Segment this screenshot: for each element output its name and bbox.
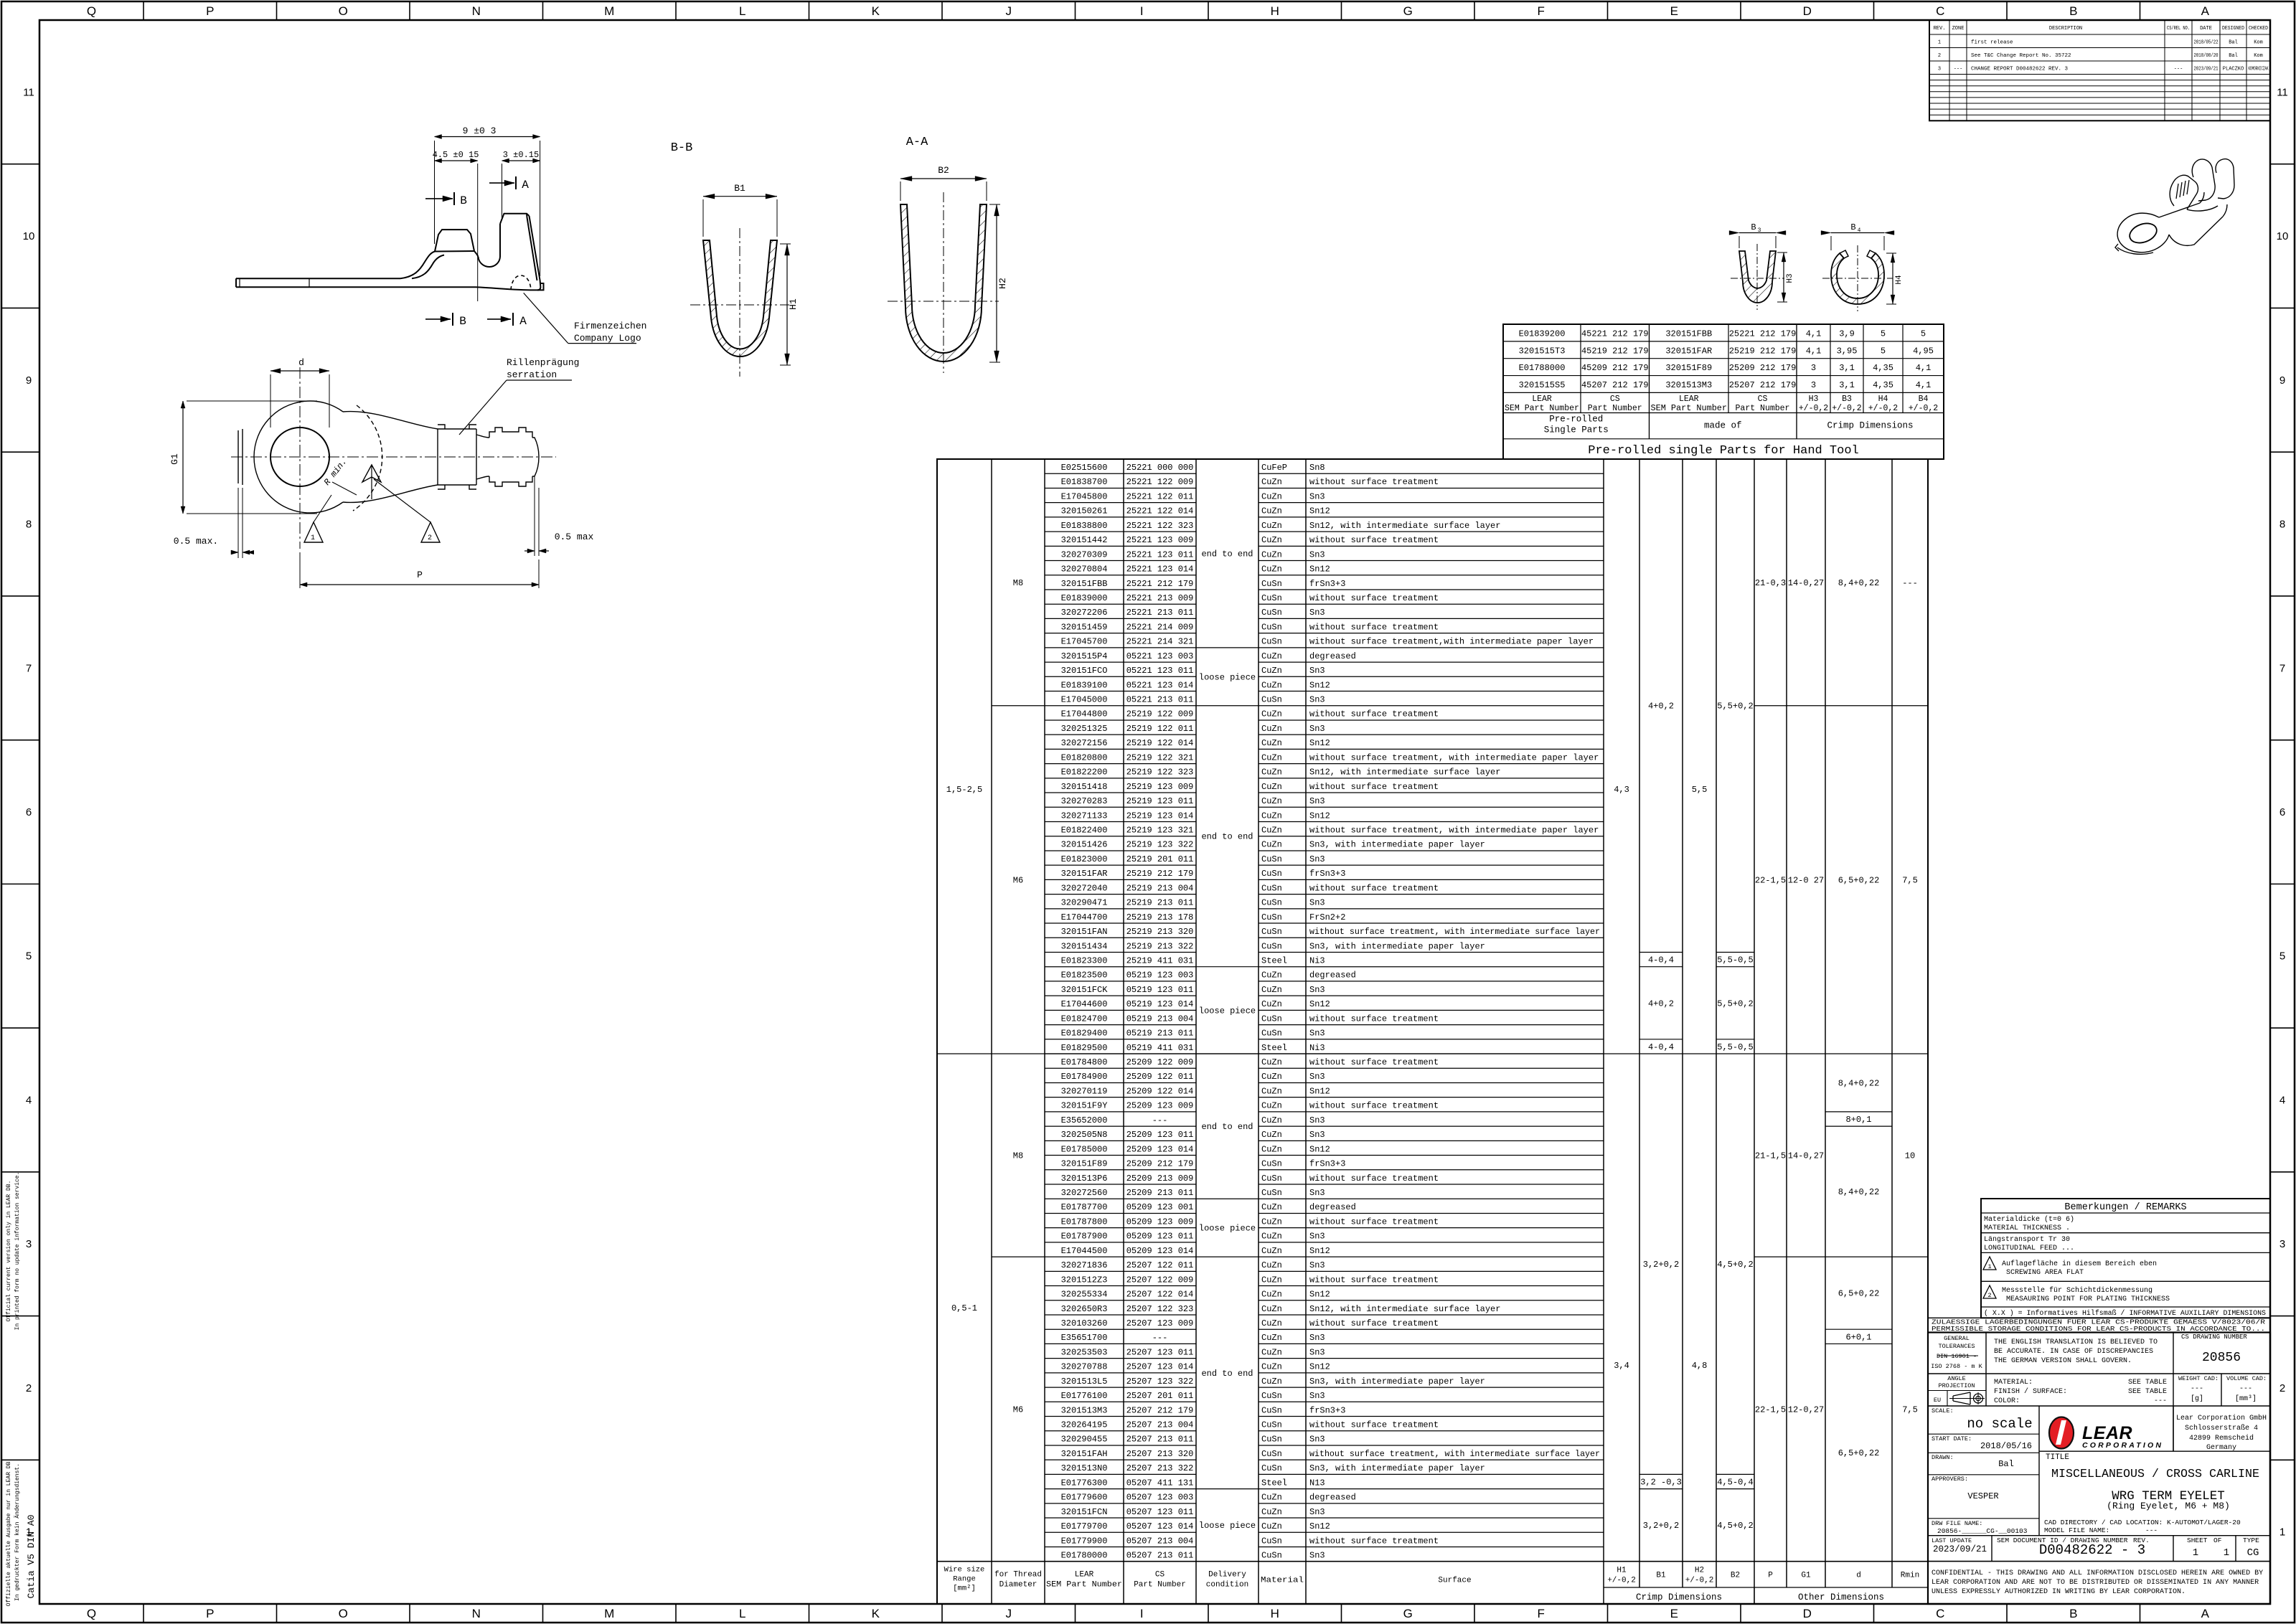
svg-text:10: 10 [1905, 1151, 1915, 1161]
svg-text:25219 122 321: 25219 122 321 [1126, 752, 1194, 763]
svg-text:25219 213 178: 25219 213 178 [1126, 912, 1194, 922]
svg-text:LONGITUDINAL FEED ...: LONGITUDINAL FEED ... [1984, 1245, 2074, 1252]
svg-text:4-0,4: 4-0,4 [1648, 1042, 1674, 1052]
svg-text:E01776300: E01776300 [1061, 1478, 1108, 1488]
svg-text:25221 123 014: 25221 123 014 [1126, 565, 1194, 575]
svg-text:CuZn: CuZn [1261, 651, 1282, 661]
svg-text:3201513M3: 3201513M3 [1665, 380, 1712, 390]
svg-text:made of: made of [1704, 421, 1742, 431]
svg-text:L: L [739, 1607, 745, 1620]
svg-text:Sn3, with intermediate paper l: Sn3, with intermediate paper layer [1309, 1377, 1485, 1387]
svg-text:CuSn: CuSn [1261, 898, 1282, 908]
svg-text:+/-0,2: +/-0,2 [1607, 1577, 1636, 1585]
svg-text:5,5-0,5: 5,5-0,5 [1717, 955, 1753, 966]
svg-text:E17045700: E17045700 [1061, 637, 1108, 647]
svg-text:25219 123 009: 25219 123 009 [1126, 782, 1194, 792]
svg-text:CuFeP: CuFeP [1261, 463, 1287, 473]
svg-text:E01787800: E01787800 [1061, 1217, 1108, 1227]
svg-text:Bal: Bal [1998, 1459, 2014, 1469]
svg-text:CAD DIRECTORY / CAD LOCATION:: CAD DIRECTORY / CAD LOCATION: K-AUTOMOT/… [2044, 1519, 2241, 1526]
svg-text:8: 8 [26, 519, 32, 531]
svg-text:frSn3+3: frSn3+3 [1309, 1405, 1345, 1415]
svg-text:Längstransport Tr 30: Längstransport Tr 30 [1984, 1235, 2070, 1244]
svg-text:10: 10 [23, 230, 35, 242]
svg-text:25207 123 011: 25207 123 011 [1126, 1347, 1194, 1357]
svg-text:2: 2 [1987, 1292, 1991, 1299]
svg-text:degreased: degreased [1309, 1493, 1356, 1503]
svg-text:Offizielle aktuelle Ausgabe nu: Offizielle aktuelle Ausgabe nur in LEAR … [6, 1458, 12, 1606]
svg-text:J: J [1006, 1607, 1012, 1620]
svg-text:loose piece: loose piece [1199, 672, 1256, 682]
svg-text:SHEET: SHEET [2187, 1536, 2208, 1544]
svg-text:Sn12: Sn12 [1309, 1521, 1330, 1531]
svg-text:4,1: 4,1 [1806, 329, 1822, 339]
svg-text:B2: B2 [938, 165, 949, 176]
svg-text:Crimp Dimensions: Crimp Dimensions [1827, 421, 1913, 431]
svg-text:CuZn: CuZn [1261, 826, 1282, 836]
svg-text:CS/REL NO.: CS/REL NO. [2167, 26, 2190, 32]
svg-text:Sn12: Sn12 [1309, 1362, 1330, 1372]
svg-text:320151FAH: 320151FAH [1061, 1449, 1108, 1459]
svg-text:Germany: Germany [2206, 1444, 2236, 1452]
svg-text:320151F89: 320151F89 [1665, 363, 1712, 373]
svg-text:CuZn: CuZn [1261, 738, 1282, 748]
svg-text:25219 123 322: 25219 123 322 [1126, 840, 1194, 850]
svg-text:25221 212 179: 25221 212 179 [1126, 579, 1194, 589]
svg-text:B: B [1850, 222, 1855, 232]
svg-text:8,4+0,22: 8,4+0,22 [1838, 1078, 1880, 1088]
svg-text:first release: first release [1971, 40, 2013, 46]
svg-text:Sn3: Sn3 [1309, 491, 1325, 501]
svg-text:1: 1 [2193, 1547, 2198, 1559]
svg-text:G: G [1403, 1607, 1413, 1620]
svg-text:Sn3: Sn3 [1309, 549, 1325, 560]
svg-text:without surface treatment: without surface treatment [1309, 535, 1439, 545]
svg-text:CuZn: CuZn [1261, 1202, 1282, 1212]
svg-text:Sn12: Sn12 [1309, 1246, 1330, 1256]
svg-text:3201513L5: 3201513L5 [1061, 1377, 1108, 1387]
svg-text:CuSn: CuSn [1261, 912, 1282, 922]
svg-text:E02515600: E02515600 [1061, 463, 1108, 473]
svg-text:4,1: 4,1 [1916, 380, 1932, 390]
svg-text:DRW FILE NAME:: DRW FILE NAME: [1932, 1520, 1982, 1527]
svg-text:3201513N0: 3201513N0 [1061, 1463, 1108, 1473]
svg-text:d: d [298, 357, 304, 368]
svg-text:without surface treatment: without surface treatment [1309, 709, 1439, 719]
svg-text:3201512Z3: 3201512Z3 [1061, 1275, 1108, 1285]
svg-text:9 ±0 3: 9 ±0 3 [463, 126, 497, 136]
svg-text:25209 122 009: 25209 122 009 [1126, 1057, 1194, 1067]
svg-text:10: 10 [2277, 230, 2289, 242]
svg-text:CuZn: CuZn [1261, 1493, 1282, 1503]
svg-text:CuZn: CuZn [1261, 1362, 1282, 1372]
svg-text:N: N [472, 1607, 481, 1620]
svg-text:no scale: no scale [1967, 1416, 2032, 1432]
svg-text:START DATE:: START DATE: [1932, 1435, 1972, 1443]
svg-text:Part Number: Part Number [1736, 404, 1790, 413]
svg-text:320270788: 320270788 [1061, 1362, 1108, 1372]
svg-text:5: 5 [1881, 346, 1886, 356]
svg-text:end to end: end to end [1201, 1122, 1253, 1132]
svg-text:E17044500: E17044500 [1061, 1246, 1108, 1256]
svg-text:Sn3: Sn3 [1309, 1333, 1325, 1343]
svg-text:loose piece: loose piece [1199, 1006, 1256, 1016]
svg-text:[mm²]: [mm²] [953, 1585, 976, 1593]
svg-text:05209 123 001: 05209 123 001 [1126, 1202, 1194, 1212]
svg-text:CuSn: CuSn [1261, 637, 1282, 647]
svg-text:SEE TABLE: SEE TABLE [2128, 1379, 2167, 1387]
svg-text:25219 213 011: 25219 213 011 [1126, 898, 1194, 908]
svg-text:EU: EU [1934, 1397, 1941, 1404]
svg-text:320103260: 320103260 [1061, 1318, 1108, 1328]
svg-text:6+0,1: 6+0,1 [1845, 1332, 1871, 1342]
svg-text:320271836: 320271836 [1061, 1260, 1108, 1270]
svg-text:3 ±0.15: 3 ±0.15 [503, 150, 539, 160]
svg-text:320151FBB: 320151FBB [1665, 329, 1712, 339]
svg-text:Sn3: Sn3 [1309, 724, 1325, 734]
svg-text:5: 5 [26, 950, 32, 963]
svg-text:F: F [1538, 4, 1545, 18]
svg-text:7,5: 7,5 [1902, 875, 1918, 885]
svg-text:---: --- [2239, 1385, 2252, 1393]
svg-text:H: H [1271, 1607, 1279, 1620]
svg-text:25221 213 009: 25221 213 009 [1126, 593, 1194, 603]
svg-text:E: E [1670, 4, 1678, 18]
svg-text:25221 122 014: 25221 122 014 [1126, 506, 1194, 516]
svg-text:without surface treatment: without surface treatment [1309, 782, 1439, 792]
svg-text:Sn3: Sn3 [1309, 1188, 1325, 1198]
svg-text:A: A [2201, 4, 2210, 18]
svg-text:CuZn: CuZn [1261, 1130, 1282, 1140]
svg-text:25209 123 014: 25209 123 014 [1126, 1144, 1194, 1154]
svg-text:Materialdicke (t=0 6): Materialdicke (t=0 6) [1984, 1215, 2074, 1224]
svg-text:CuZn: CuZn [1261, 1333, 1282, 1343]
svg-text:D: D [1803, 4, 1812, 18]
svg-text:H3: H3 [1786, 273, 1794, 283]
svg-text:2018/05/22: 2018/05/22 [2194, 40, 2219, 46]
svg-text:25207 122 011: 25207 122 011 [1126, 1260, 1194, 1270]
svg-text:3: 3 [1811, 363, 1816, 373]
svg-text:REV.: REV. [1934, 26, 1946, 32]
svg-text:CuZn: CuZn [1261, 1115, 1282, 1125]
svg-text:25219 213 004: 25219 213 004 [1126, 883, 1194, 893]
svg-text:9: 9 [26, 374, 32, 387]
svg-text:CuZn: CuZn [1261, 1232, 1282, 1242]
svg-text:In gedruckter Form kein Änderu: In gedruckter Form kein Änderungsdienst. [14, 1463, 21, 1601]
svg-text:320151FAR: 320151FAR [1665, 346, 1712, 356]
svg-text:25209 123 009: 25209 123 009 [1126, 1101, 1194, 1111]
svg-text:Bal: Bal [2229, 40, 2238, 46]
svg-text:B: B [460, 194, 467, 207]
svg-text:A-A: A-A [906, 136, 928, 149]
svg-text:3,1: 3,1 [1839, 380, 1855, 390]
svg-text:degreased: degreased [1309, 971, 1356, 981]
svg-text:d: d [1856, 1572, 1861, 1580]
svg-text:Sn3: Sn3 [1309, 898, 1325, 908]
svg-text:CuSn: CuSn [1261, 622, 1282, 632]
svg-text:E01822200: E01822200 [1061, 768, 1108, 778]
svg-text:O: O [339, 4, 348, 18]
svg-text:E01829400: E01829400 [1061, 1029, 1108, 1039]
svg-text:Sn3: Sn3 [1309, 666, 1325, 676]
svg-text:25209 123 011: 25209 123 011 [1126, 1130, 1194, 1140]
svg-text:MODEL FILE NAME:: MODEL FILE NAME: [2044, 1526, 2109, 1534]
svg-text:3201513M3: 3201513M3 [1061, 1405, 1108, 1415]
svg-text:CuZn: CuZn [1261, 1057, 1282, 1067]
svg-text:Sn3: Sn3 [1309, 1072, 1325, 1082]
svg-text:CuSn: CuSn [1261, 1536, 1282, 1546]
svg-text:05219 213 011: 05219 213 011 [1126, 1029, 1194, 1039]
svg-text:Sn3: Sn3 [1309, 1260, 1325, 1270]
svg-text:A: A [522, 179, 529, 192]
svg-text:Sn12, with intermediate surfac: Sn12, with intermediate surface layer [1309, 521, 1500, 531]
svg-text:P: P [1768, 1572, 1773, 1580]
svg-text:E17044800: E17044800 [1061, 709, 1108, 719]
svg-text:+/-0,2: +/-0,2 [1832, 404, 1862, 413]
svg-text:4,5+0,2: 4,5+0,2 [1717, 1260, 1753, 1270]
svg-text:05207 213 004: 05207 213 004 [1126, 1536, 1194, 1546]
svg-text:---: --- [1954, 67, 1963, 72]
svg-text:LEAR CORPORATION AND ARE NOT T: LEAR CORPORATION AND ARE NOT TO BE DISTR… [1932, 1579, 2259, 1587]
svg-text:---: --- [2145, 1526, 2158, 1534]
svg-text:[mm³]: [mm³] [2235, 1394, 2257, 1403]
svg-text:25221 214 321: 25221 214 321 [1126, 637, 1194, 647]
svg-text:320272560: 320272560 [1061, 1188, 1108, 1198]
svg-text:Pre-rolled single Parts for Ha: Pre-rolled single Parts for Hand Tool [1588, 444, 1858, 458]
svg-text:---: --- [1152, 1333, 1168, 1343]
svg-text:Official current version only: Official current version only in LEAR DB… [6, 1181, 12, 1322]
svg-text:320251325: 320251325 [1061, 724, 1108, 734]
svg-text:3,2 -0,3: 3,2 -0,3 [1640, 1478, 1682, 1488]
svg-text:TYPE: TYPE [2243, 1536, 2259, 1544]
svg-text:25219 123 011: 25219 123 011 [1126, 796, 1194, 806]
svg-text:320151418: 320151418 [1061, 782, 1108, 792]
svg-text:CuSn: CuSn [1261, 695, 1282, 705]
svg-text:without surface treatment, wit: without surface treatment, with intermed… [1309, 1449, 1600, 1459]
svg-text:Range: Range [953, 1575, 976, 1584]
svg-text:3,2+0,2: 3,2+0,2 [1643, 1521, 1679, 1531]
svg-text:Q: Q [87, 4, 96, 18]
svg-text:E01788000: E01788000 [1519, 363, 1566, 373]
svg-text:ISO 2768 - m K: ISO 2768 - m K [1931, 1363, 1982, 1370]
svg-text:C: C [1936, 4, 1944, 18]
svg-text:B: B [459, 315, 466, 328]
svg-text:E01820800: E01820800 [1061, 752, 1108, 763]
svg-text:12-0 27: 12-0 27 [1788, 875, 1824, 885]
svg-text:2: 2 [2279, 1382, 2285, 1394]
svg-text:Sn12: Sn12 [1309, 506, 1330, 516]
svg-text:E01838800: E01838800 [1061, 521, 1108, 531]
svg-text:3202650R3: 3202650R3 [1061, 1304, 1108, 1314]
svg-text:25219 123 014: 25219 123 014 [1126, 811, 1194, 821]
svg-text:6,5+0,22: 6,5+0,22 [1838, 1289, 1880, 1299]
svg-text:Crimp Dimensions: Crimp Dimensions [1636, 1592, 1722, 1602]
svg-text:4,1: 4,1 [1806, 346, 1822, 356]
svg-text:frSn3+3: frSn3+3 [1309, 1159, 1345, 1169]
svg-text:CuZn: CuZn [1261, 1217, 1282, 1227]
svg-text:320272206: 320272206 [1061, 608, 1108, 618]
svg-text:ANGLE: ANGLE [1947, 1375, 1966, 1382]
svg-text:without surface treatment: without surface treatment [1309, 1101, 1439, 1111]
svg-text:E: E [1670, 1607, 1678, 1620]
svg-text:320151FAR: 320151FAR [1061, 869, 1108, 879]
svg-text:+/-0,2: +/-0,2 [1909, 404, 1939, 413]
svg-text:M: M [604, 1607, 614, 1620]
svg-text:3201513P6: 3201513P6 [1061, 1174, 1108, 1184]
svg-text:CS: CS [1155, 1571, 1165, 1580]
svg-text:Sn3, with intermediate paper l: Sn3, with intermediate paper layer [1309, 840, 1485, 850]
svg-text:(Ring Eyelet, M6 + M8): (Ring Eyelet, M6 + M8) [2107, 1501, 2230, 1511]
svg-text:2018/05/16: 2018/05/16 [1980, 1441, 2032, 1451]
svg-text:E01787700: E01787700 [1061, 1202, 1108, 1212]
svg-text:B: B [1751, 222, 1756, 232]
svg-text:without surface treatment, wit: without surface treatment, with intermed… [1309, 927, 1600, 937]
svg-text:B-B: B-B [671, 141, 693, 155]
svg-text:without surface treatment: without surface treatment [1309, 1275, 1439, 1285]
svg-text:Firmenzeichen: Firmenzeichen [574, 321, 646, 331]
svg-text:CuZn: CuZn [1261, 535, 1282, 545]
svg-text:9: 9 [2279, 374, 2285, 387]
svg-text:O: O [339, 1607, 348, 1620]
svg-text:H2: H2 [997, 278, 1008, 289]
svg-text:without surface treatment: without surface treatment [1309, 1420, 1439, 1430]
svg-text:8+0,1: 8+0,1 [1845, 1115, 1871, 1125]
svg-text:MEASAURING POINT FOR PLATING T: MEASAURING POINT FOR PLATING THICKNESS [2006, 1295, 2170, 1303]
svg-text:H1: H1 [788, 298, 799, 310]
svg-text:1: 1 [2224, 1547, 2229, 1559]
svg-text:M: M [604, 4, 614, 18]
svg-text:without surface treatment: without surface treatment [1309, 1174, 1439, 1184]
svg-text:CHANGE REPORT D00482622 REV. 3: CHANGE REPORT D00482622 REV. 3 [1971, 67, 2069, 72]
svg-text:25207 212 179: 25207 212 179 [1126, 1405, 1194, 1415]
svg-text:CuSn: CuSn [1261, 883, 1282, 893]
svg-text:Kom: Kom [2254, 53, 2263, 59]
svg-text:21-1,5: 21-1,5 [1755, 1151, 1786, 1161]
svg-text:25221 122 009: 25221 122 009 [1126, 477, 1194, 487]
svg-text:SCREWING AREA FLAT: SCREWING AREA FLAT [2006, 1269, 2084, 1277]
svg-text:M6: M6 [1013, 1405, 1023, 1415]
svg-text:Sn3: Sn3 [1309, 985, 1325, 995]
svg-text:end to end: end to end [1201, 549, 1253, 559]
svg-text:CuZn: CuZn [1261, 666, 1282, 676]
svg-text:5,5+0,2: 5,5+0,2 [1717, 999, 1753, 1009]
svg-text:CuZn: CuZn [1261, 1246, 1282, 1256]
svg-text:CuSn: CuSn [1261, 1420, 1282, 1430]
svg-text:4,95: 4,95 [1913, 346, 1934, 356]
svg-text:CuSn: CuSn [1261, 1435, 1282, 1445]
svg-text:8,4+0,22: 8,4+0,22 [1838, 578, 1880, 588]
svg-text:25221 123 009: 25221 123 009 [1126, 535, 1194, 545]
svg-text:CuSn: CuSn [1261, 1449, 1282, 1459]
svg-text:45219 212 179: 45219 212 179 [1581, 346, 1649, 356]
svg-text:end to end: end to end [1201, 1369, 1253, 1379]
svg-text:G1: G1 [1801, 1572, 1811, 1580]
svg-text:CuZn: CuZn [1261, 1521, 1282, 1531]
svg-text:CuSn: CuSn [1261, 854, 1282, 864]
svg-text:( X.X ) = Informatives Hilfsma: ( X.X ) = Informatives Hilfsmaß / INFORM… [1984, 1309, 2266, 1318]
svg-text:3,9: 3,9 [1839, 329, 1855, 339]
svg-text:7: 7 [2279, 662, 2285, 674]
svg-text:E01787900: E01787900 [1061, 1232, 1108, 1242]
svg-text:LEAR: LEAR [1075, 1571, 1094, 1580]
svg-text:B1: B1 [734, 183, 745, 194]
svg-text:E17045800: E17045800 [1061, 491, 1108, 501]
svg-text:25207 123 009: 25207 123 009 [1126, 1318, 1194, 1328]
svg-text:CuZn: CuZn [1261, 752, 1282, 763]
svg-text:without surface treatment: without surface treatment [1309, 1318, 1439, 1328]
svg-text:E01776100: E01776100 [1061, 1391, 1108, 1401]
svg-text:PERMISSIBLE STORAGE CONDITIONS: PERMISSIBLE STORAGE CONDITIONS FOR LEAR … [1932, 1325, 2265, 1333]
svg-text:4+0,2: 4+0,2 [1648, 702, 1674, 712]
svg-text:M8: M8 [1013, 1151, 1023, 1161]
svg-text:4,8: 4,8 [1692, 1361, 1708, 1371]
svg-text:320151F89: 320151F89 [1061, 1159, 1108, 1169]
svg-text:CuZn: CuZn [1261, 1260, 1282, 1270]
svg-text:N13: N13 [1309, 1478, 1325, 1488]
svg-text:25209 122 011: 25209 122 011 [1126, 1072, 1194, 1082]
svg-text:DESCRIPTION: DESCRIPTION [2049, 26, 2082, 32]
svg-text:25219 122 323: 25219 122 323 [1126, 768, 1194, 778]
svg-text:3: 3 [1938, 67, 1941, 72]
svg-text:25219 212 179: 25219 212 179 [1729, 346, 1797, 356]
svg-text:Sn12: Sn12 [1309, 738, 1330, 748]
svg-text:CuZn: CuZn [1261, 549, 1282, 560]
svg-text:LEAR: LEAR [1532, 395, 1552, 404]
svg-text:45221 212 179: 45221 212 179 [1581, 329, 1649, 339]
svg-text:See T&C Change Report No. 3572: See T&C Change Report No. 35722 [1971, 53, 2071, 59]
svg-text:320151434: 320151434 [1061, 941, 1108, 951]
svg-text:320290471: 320290471 [1061, 898, 1108, 908]
svg-text:PLACZKO: PLACZKO [2223, 67, 2244, 72]
svg-text:In printed form no update info: In printed form no update information se… [14, 1172, 21, 1331]
svg-text:4: 4 [2279, 1094, 2285, 1106]
svg-text:B1: B1 [1656, 1572, 1666, 1580]
svg-text:320151426: 320151426 [1061, 840, 1108, 850]
svg-text:without surface treatment: without surface treatment [1309, 622, 1439, 632]
svg-text:Sn12: Sn12 [1309, 999, 1330, 1009]
svg-text:05207 123 011: 05207 123 011 [1126, 1507, 1194, 1517]
svg-text:2018/08/20: 2018/08/20 [2194, 53, 2219, 59]
svg-text:VOLUME CAD:: VOLUME CAD: [2226, 1375, 2267, 1382]
svg-text:25207 213 011: 25207 213 011 [1126, 1435, 1194, 1445]
svg-text:25219 122 011: 25219 122 011 [1126, 724, 1194, 734]
svg-text:Diameter: Diameter [999, 1581, 1038, 1590]
svg-text:---: --- [1152, 1115, 1168, 1125]
svg-text:D00482622 - 3: D00482622 - 3 [2039, 1542, 2145, 1558]
svg-text:320151459: 320151459 [1061, 622, 1108, 632]
svg-text:05209 123 009: 05209 123 009 [1126, 1217, 1194, 1227]
svg-text:P: P [417, 570, 423, 580]
svg-text:CuZn: CuZn [1261, 1144, 1282, 1154]
svg-text:without surface treatment,with: without surface treatment,with intermedi… [1309, 637, 1594, 647]
svg-text:Sn3: Sn3 [1309, 1130, 1325, 1140]
svg-text:M8: M8 [1013, 578, 1023, 588]
svg-text:7,5: 7,5 [1902, 1405, 1918, 1415]
svg-text:42899 Remscheid: 42899 Remscheid [2189, 1434, 2254, 1443]
svg-text:Company Logo: Company Logo [574, 333, 641, 344]
svg-text:---: --- [2174, 67, 2183, 72]
svg-text:A: A [519, 315, 527, 328]
svg-text:serration: serration [507, 369, 557, 380]
svg-text:degreased: degreased [1309, 1202, 1356, 1212]
svg-text:25219 213 320: 25219 213 320 [1126, 927, 1194, 937]
svg-text:E01824700: E01824700 [1061, 1014, 1108, 1024]
svg-text:H2: H2 [1695, 1567, 1704, 1575]
svg-text:Sn3, with intermediate paper l: Sn3, with intermediate paper layer [1309, 1463, 1485, 1473]
svg-text:CuZn: CuZn [1261, 709, 1282, 719]
svg-text:A: A [2201, 1607, 2210, 1620]
svg-text:PROJECTION: PROJECTION [1938, 1382, 1975, 1389]
